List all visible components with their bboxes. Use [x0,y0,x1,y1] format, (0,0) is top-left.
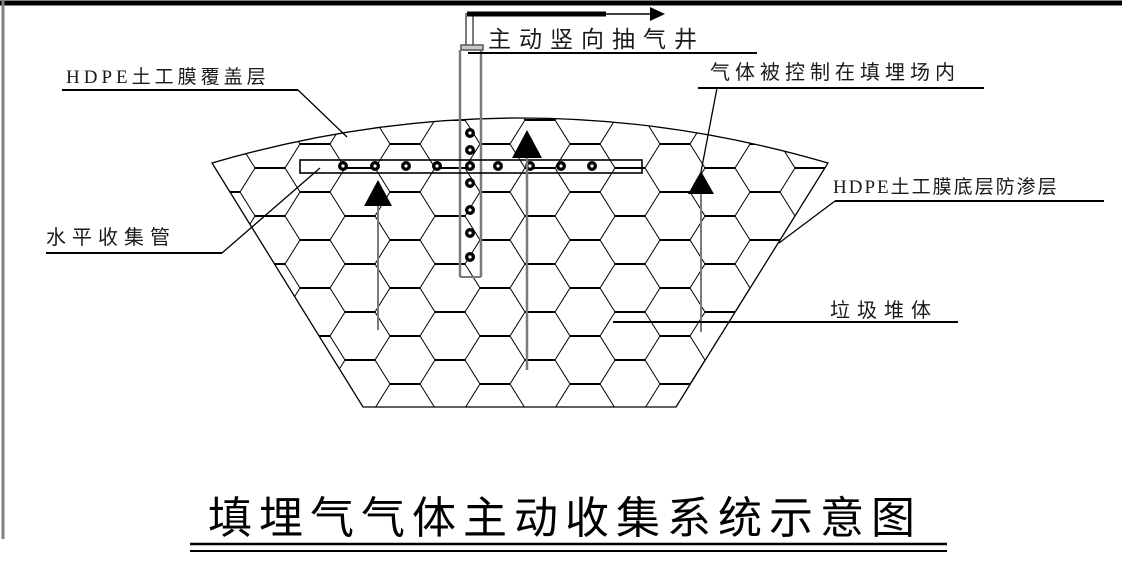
label-horizontal-pipe: 水平收集管 [46,221,176,250]
label-hdpe-bottom-liner: HDPE土工膜底层防渗层 [833,172,1059,199]
leader-hdpe-cover [62,90,347,137]
label-waste-body: 垃圾堆体 [830,294,938,323]
label-vertical-well: 主动竖向抽气井 [488,20,705,54]
waste-body-shape [212,118,828,407]
diagram-title: 填埋气气体主动收集系统示意图 [150,482,980,546]
leader-bottom-liner [779,201,1104,243]
label-hdpe-cover: HDPE土工膜覆盖层 [66,62,270,89]
horizontal-pipe-perforations [338,161,597,171]
suction-arrow [467,7,665,21]
landfill-gas-diagram-page: 主动竖向抽气井 HDPE土工膜覆盖层 气体被控制在填埋场内 HDPE土工膜底层防… [0,0,1122,563]
label-gas-contained: 气体被控制在填埋场内 [710,56,960,85]
